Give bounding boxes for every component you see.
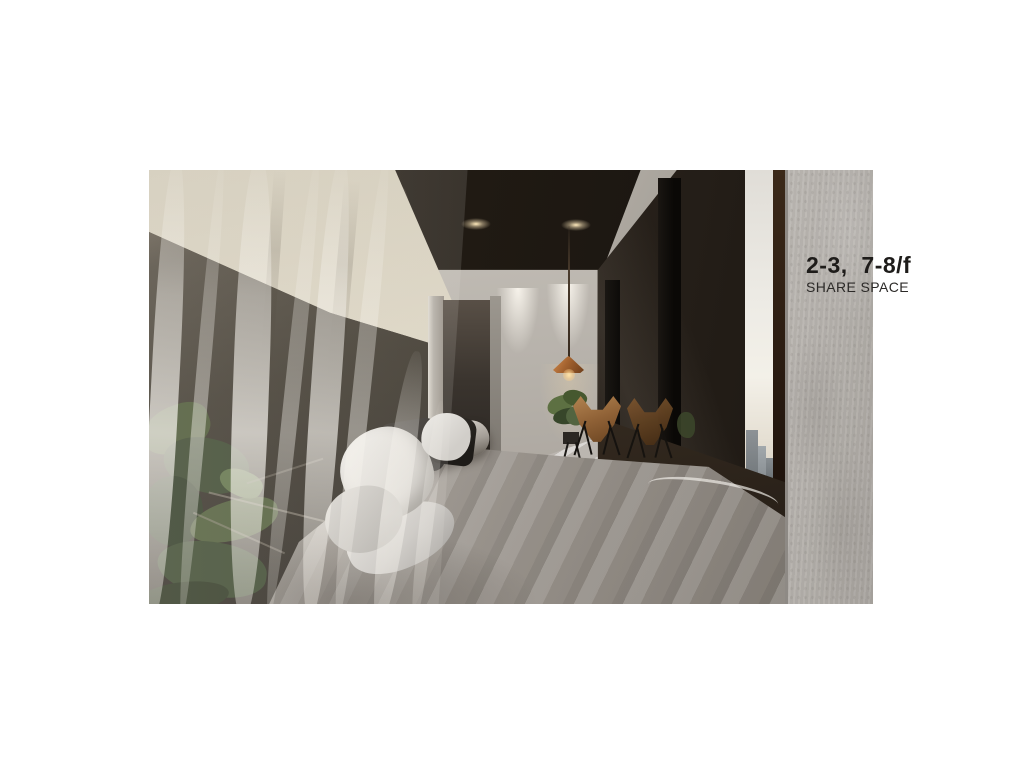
caption-subtitle: SHARE SPACE [806, 279, 911, 296]
page: 2-3, 7-8/f SHARE SPACE [0, 0, 1024, 768]
concrete-column [785, 170, 873, 604]
interior-render [149, 170, 873, 604]
caption: 2-3, 7-8/f SHARE SPACE [806, 253, 911, 296]
caption-title: 2-3, 7-8/f [806, 253, 911, 277]
sheer-curtains [149, 170, 873, 604]
